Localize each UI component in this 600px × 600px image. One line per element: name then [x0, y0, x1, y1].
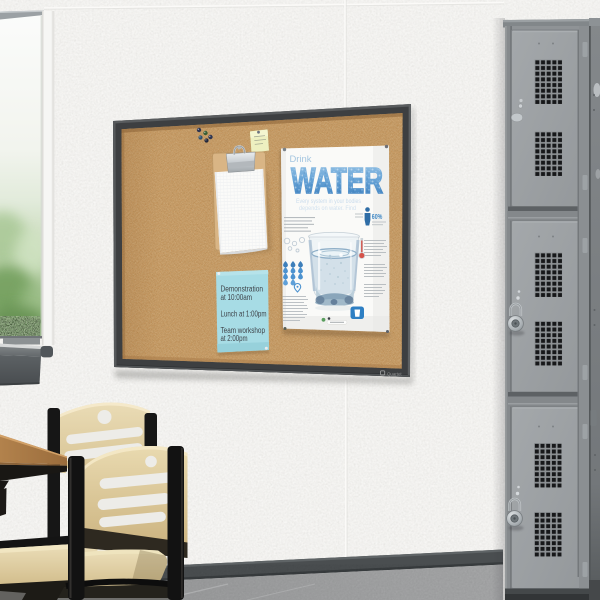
svg-text:60%: 60% [372, 212, 383, 221]
svg-text:at 10:00am: at 10:00am [221, 293, 253, 302]
svg-text:Lunch at 1:00pm: Lunch at 1:00pm [221, 310, 267, 319]
svg-text:Quartet: Quartet [387, 371, 402, 376]
svg-text:WATER: WATER [291, 160, 383, 201]
svg-text:at 2:00pm: at 2:00pm [221, 334, 248, 343]
svg-text:depends on water. Find: depends on water. Find [299, 205, 356, 212]
